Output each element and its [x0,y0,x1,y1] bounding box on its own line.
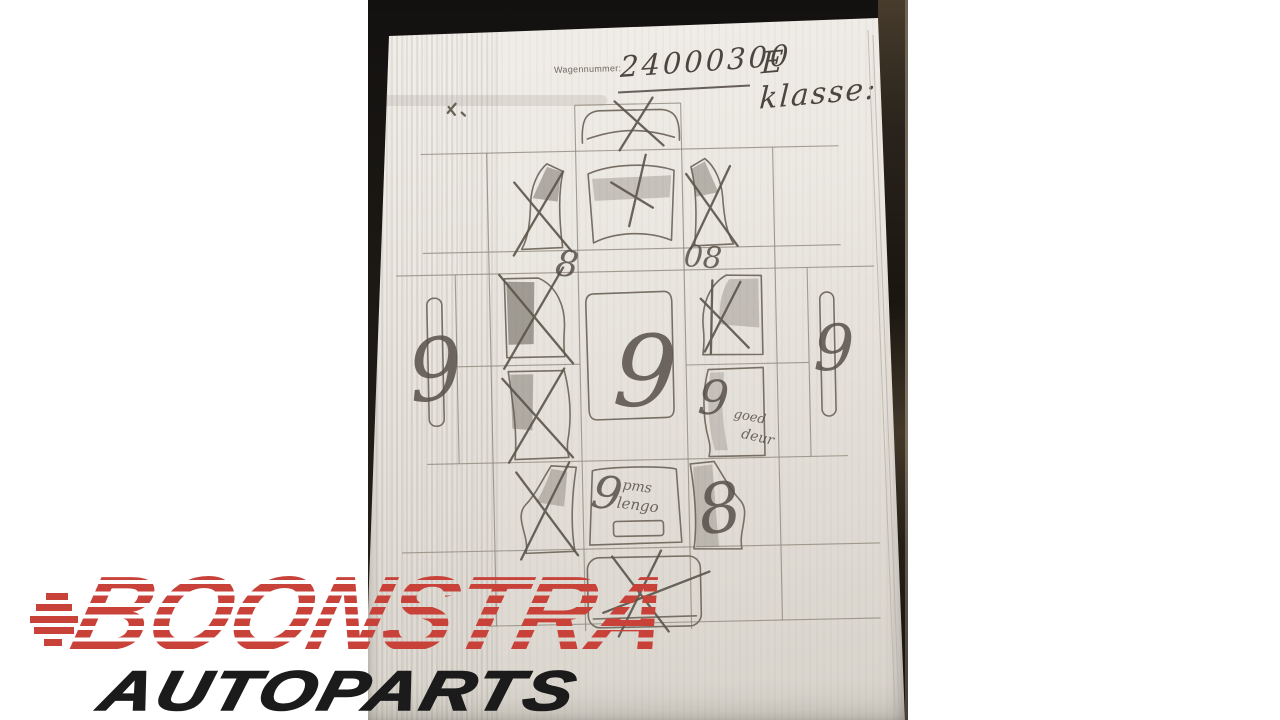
logo-wordmark: BOONSTRA [62,561,680,671]
mark-roof: 9 [611,312,680,432]
speed-line-icon [46,593,68,600]
right-front-door-sketch [700,274,763,355]
speed-line-icon [30,616,78,623]
mark-left-sill: 9 [404,318,468,423]
mark-left-fender: 8 [553,243,581,286]
right-front-fender-sketch [686,158,738,249]
workbench-edge-highlight [905,0,908,720]
mark-right-sill: 9 [813,312,855,387]
note-right-rear-door-1: goed [733,407,767,428]
x-mark-front-bumper [615,97,664,150]
speed-line-icon [34,627,74,634]
note-right-rear-door-2: deur [740,426,777,449]
logo-subtitle: AUTOPARTS [94,663,584,719]
note-trunk-2: lengo [616,494,660,517]
page: Wagennummer: 24000300 E klasse: [0,0,1280,720]
speed-line-icon [44,639,62,646]
left-quarter-panel-sketch [516,462,578,559]
hood-sketch [588,154,676,243]
mark-hood-right: 08 [683,239,723,276]
stray-scribble [448,104,465,116]
speed-line-icon [36,604,72,611]
left-front-fender-sketch [512,163,572,255]
left-rear-door-sketch [502,368,573,462]
mark-right-rear-door: 9 [696,369,731,427]
x-mark-left-quarter-panel [516,462,578,559]
